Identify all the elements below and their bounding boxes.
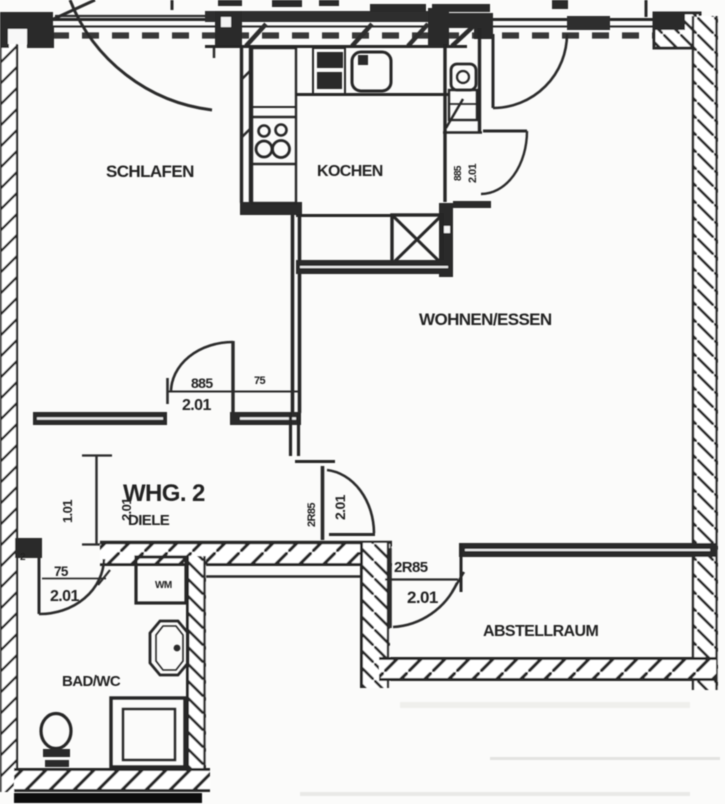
svg-text:SCHLAFEN: SCHLAFEN bbox=[106, 162, 194, 181]
svg-text:885: 885 bbox=[191, 375, 213, 391]
svg-text:2.01: 2.01 bbox=[50, 588, 79, 605]
svg-text:WHG. 2: WHG. 2 bbox=[123, 480, 205, 507]
svg-text:ABSTELLRAUM: ABSTELLRAUM bbox=[483, 623, 598, 640]
svg-text:2R85: 2R85 bbox=[306, 503, 318, 527]
svg-text:WOHNEN/ESSEN: WOHNEN/ESSEN bbox=[419, 310, 552, 329]
svg-text:2R85: 2R85 bbox=[394, 559, 428, 576]
svg-text:2.01: 2.01 bbox=[332, 494, 348, 520]
svg-text:WM: WM bbox=[155, 580, 172, 591]
svg-text:885: 885 bbox=[453, 165, 464, 181]
svg-text:75: 75 bbox=[54, 564, 69, 579]
svg-text:75: 75 bbox=[254, 375, 266, 387]
svg-text:1.01: 1.01 bbox=[60, 500, 75, 523]
svg-text:2.01: 2.01 bbox=[467, 164, 479, 183]
svg-text:2.01: 2.01 bbox=[119, 498, 134, 521]
svg-text:2.01: 2.01 bbox=[182, 397, 211, 414]
svg-text:KOCHEN: KOCHEN bbox=[317, 163, 383, 180]
svg-text:2.01: 2.01 bbox=[407, 588, 438, 607]
svg-text:BAD/WC: BAD/WC bbox=[62, 673, 121, 690]
svg-text:DIELE: DIELE bbox=[128, 512, 170, 529]
